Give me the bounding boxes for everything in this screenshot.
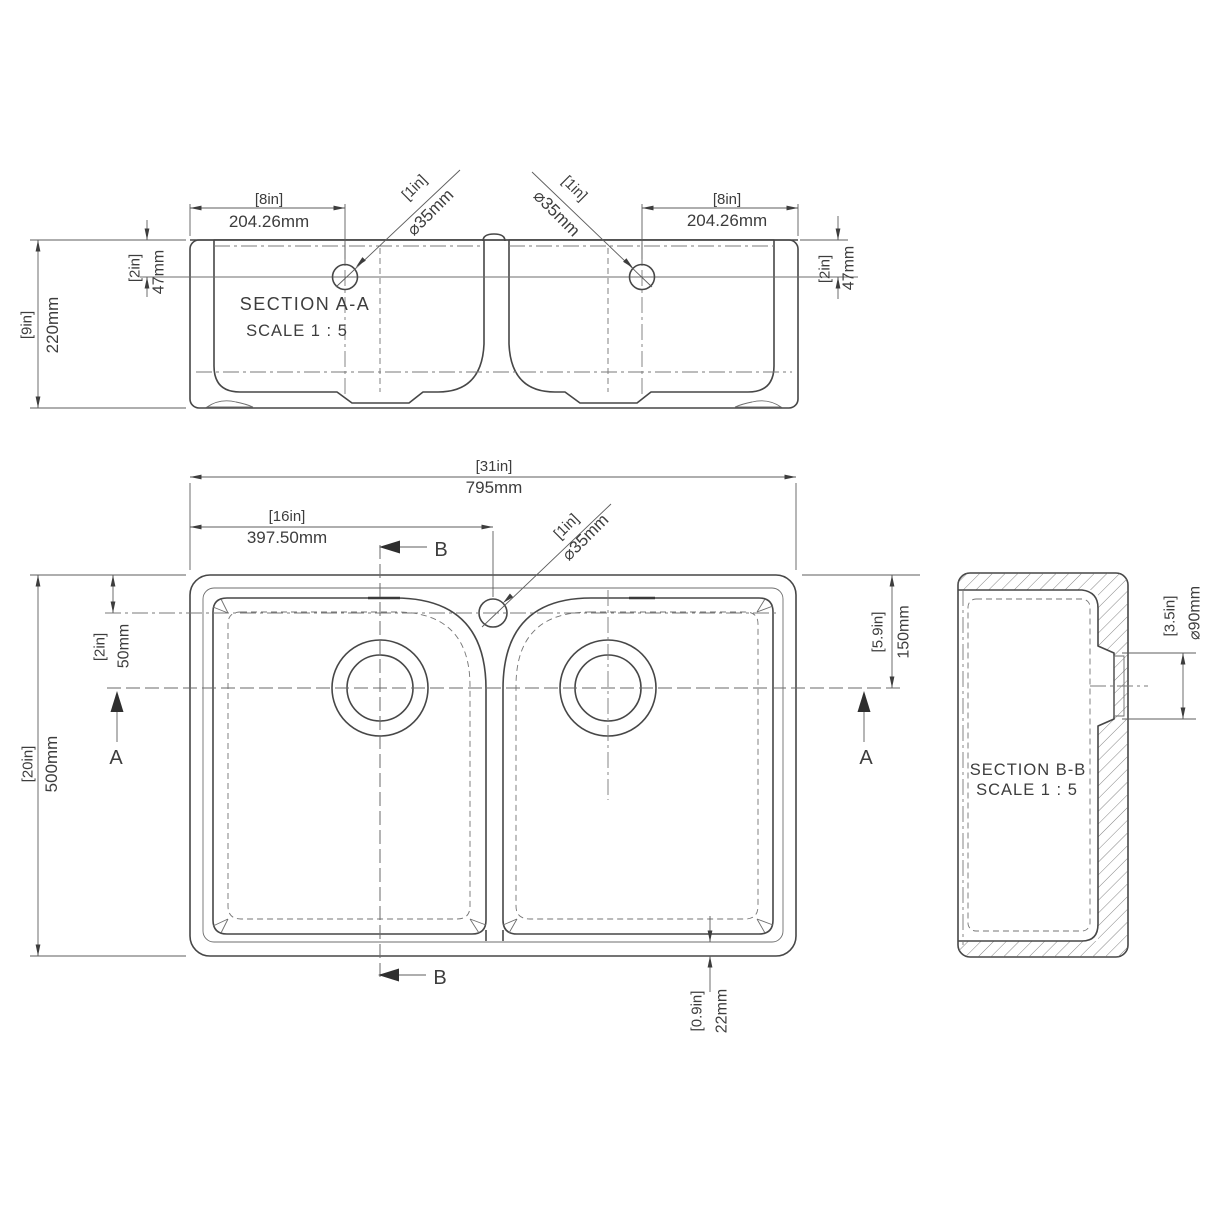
aa-dim-9in: [9in] <box>18 311 35 339</box>
aa-dim-right-2in: [2in] <box>816 255 833 283</box>
plan-right-bowl-hidden <box>516 612 758 919</box>
bb-wall-hatch <box>1098 590 1128 941</box>
plan-dim-22mm: 22mm <box>714 989 731 1033</box>
plan-dim-16in: [16in] <box>269 508 306 525</box>
aa-dim-right-47mm: 47mm <box>841 246 858 290</box>
aa-title: SECTION A-A <box>240 294 371 314</box>
plan-view: [31in] 795mm [16in] 397.50mm [20in] 500m… <box>19 458 920 1033</box>
plan-dim-795mm: 795mm <box>466 478 523 497</box>
plan-left-bowl-hidden <box>228 612 470 919</box>
plan-dim-50mm: 50mm <box>116 624 133 668</box>
aa-dim-left-1in: [1in] <box>398 171 430 203</box>
bb-title: SECTION B-B <box>970 761 1086 779</box>
aa-right-foot <box>735 401 781 407</box>
plan-right-bowl <box>503 598 773 934</box>
section-b-arrow-top <box>379 541 427 554</box>
plan-dim-09in: [0.9in] <box>688 991 705 1032</box>
aa-dim-right-8in: [8in] <box>713 191 741 208</box>
aa-dim-left-8in: [8in] <box>255 191 283 208</box>
plan-dim-20in: [20in] <box>19 746 36 783</box>
aa-dim-left-47mm: 47mm <box>151 250 168 294</box>
plan-rim-inner-edge <box>203 588 783 942</box>
plan-label-a-right: A <box>859 747 873 769</box>
bb-dimension <box>1122 653 1196 719</box>
plan-corner-fans <box>213 599 773 933</box>
plan-dimensions <box>30 475 920 992</box>
plan-label-b-bottom: B <box>433 967 446 989</box>
aa-left-foot <box>207 401 253 407</box>
plan-label-b-top: B <box>434 539 447 561</box>
aa-dim-220mm: 220mm <box>43 297 62 354</box>
plan-left-bowl <box>213 598 486 934</box>
plan-label-a-left: A <box>109 747 123 769</box>
sink-technical-drawing-page: [8in] 204.26mm [8in] 204.26mm [1in] ⌀35m… <box>0 0 1214 1214</box>
bb-dim-35in: [3.5in] <box>1161 596 1178 637</box>
plan-outer-edge <box>190 575 796 956</box>
bb-dim-dia90: ⌀90mm <box>1187 586 1204 640</box>
section-a-arrow-left <box>111 691 124 742</box>
section-b-arrow-bottom <box>378 969 426 982</box>
aa-dim-right-1in: [1in] <box>558 172 590 204</box>
section-a-arrow-right <box>858 691 871 742</box>
aa-scale: SCALE 1 : 5 <box>246 322 348 340</box>
section-aa-view: [8in] 204.26mm [8in] 204.26mm [1in] ⌀35m… <box>18 170 858 408</box>
sink-technical-drawing: [8in] 204.26mm [8in] 204.26mm [1in] ⌀35m… <box>0 0 1214 1214</box>
bb-bottom-hatch <box>958 941 1128 957</box>
plan-dim-31in: [31in] <box>476 458 513 475</box>
plan-dim-59in: [5.9in] <box>869 612 886 653</box>
aa-dim-left-2in: [2in] <box>126 254 143 282</box>
section-bb-view: [3.5in] ⌀90mm SECTION B-B SCALE 1 : 5 <box>958 573 1204 957</box>
aa-dim-left-204mm: 204.26mm <box>229 212 309 231</box>
plan-dim-397mm: 397.50mm <box>247 528 327 547</box>
bb-scale: SCALE 1 : 5 <box>976 781 1078 799</box>
bb-top-rim-hatch <box>958 573 1128 590</box>
plan-dim-150mm: 150mm <box>896 605 913 658</box>
aa-dim-right-204mm: 204.26mm <box>687 211 767 230</box>
plan-dim-2in: [2in] <box>91 633 108 661</box>
plan-dim-500mm: 500mm <box>42 736 61 793</box>
plan-centerlines <box>105 545 905 977</box>
